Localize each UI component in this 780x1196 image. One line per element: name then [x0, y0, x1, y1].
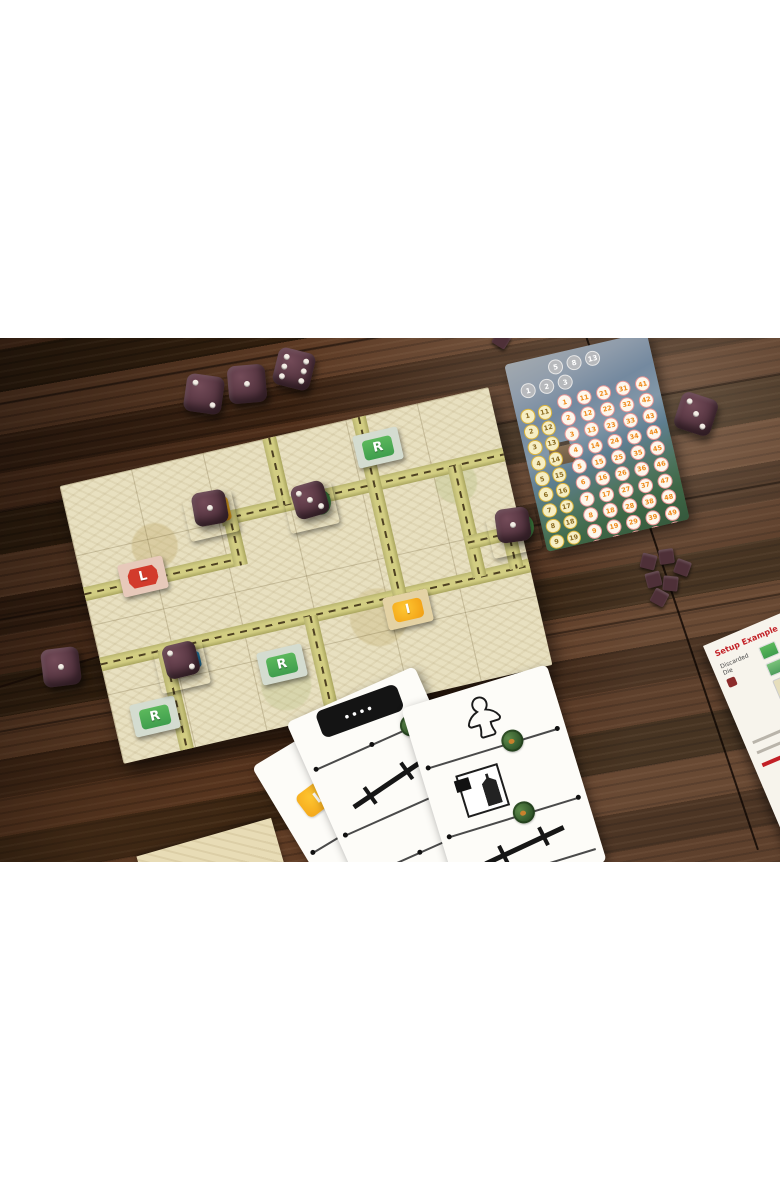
rulebook-page: Setup Example Discarded Die [703, 568, 780, 862]
score-circle: 44 [645, 423, 663, 441]
score-circle: 29 [624, 513, 642, 531]
wooden-cube [491, 338, 512, 350]
green-R-badge: R [138, 703, 172, 729]
die [190, 488, 229, 527]
score-circle: 34 [625, 428, 643, 446]
score-circle: 35 [629, 444, 647, 462]
wooden-cube [673, 558, 692, 577]
tile-thumbnail [765, 657, 780, 677]
score-circle: 10 [552, 549, 569, 552]
die-pip [188, 663, 195, 670]
die [672, 390, 720, 438]
score-circle: 21 [595, 384, 613, 402]
score-circle: 3 [526, 439, 543, 456]
scorepad-number-grids: 1234567891011121314151617181920 12345678… [518, 375, 686, 552]
bonus-circle: 2 [538, 377, 556, 395]
score-circle: 11 [575, 388, 593, 406]
score-circle: 8 [582, 506, 600, 524]
score-circle: 23 [602, 416, 620, 434]
score-circle: 4 [530, 455, 547, 472]
die [271, 346, 317, 392]
die-pip [300, 368, 307, 375]
bonus-circle: 8 [565, 354, 583, 372]
score-circle: 19 [565, 529, 582, 546]
scorepad-gray-track-upper: 5813 [547, 349, 602, 376]
wooden-cube [662, 575, 678, 591]
plank-seam [0, 338, 780, 410]
die-pip [192, 379, 199, 386]
die-pip [510, 522, 517, 529]
score-circle: 32 [618, 395, 636, 413]
wooden-cube [658, 548, 675, 565]
score-circle: 6 [574, 474, 592, 492]
die-pip [298, 377, 305, 384]
score-circle: 11 [536, 404, 553, 421]
score-circle: 45 [649, 439, 667, 457]
score-circle: 12 [579, 404, 597, 422]
die-pip [306, 496, 313, 503]
score-circle: 4 [567, 441, 585, 459]
score-circle: 14 [586, 437, 604, 455]
score-circle: 9 [585, 522, 603, 540]
rules-example-row: Discarded Die [719, 592, 780, 734]
score-circle: 18 [561, 513, 578, 530]
score-circle: 2 [559, 409, 577, 427]
green-R-badge: R [265, 651, 299, 677]
score-circle: 41 [634, 375, 652, 393]
score-circle: 33 [622, 412, 640, 430]
orange-I-badge: I [391, 596, 425, 622]
score-circle: 16 [554, 482, 571, 499]
score-circle: 48 [660, 488, 678, 506]
score-circle: 9 [548, 533, 565, 550]
score-circle: 20 [609, 534, 627, 552]
score-circle: 5 [571, 457, 589, 475]
score-circle: 15 [590, 453, 608, 471]
die-pip [295, 490, 302, 497]
product-photo: L R R R I 5813 123 [0, 338, 780, 862]
score-circle: 24 [606, 432, 624, 450]
bonus-circle: 1 [519, 382, 537, 400]
die [226, 363, 267, 404]
score-circle: 28 [621, 497, 639, 515]
green-R-badge: R [361, 434, 395, 460]
score-circle: 7 [578, 490, 596, 508]
score-circle: 27 [617, 481, 635, 499]
score-circle: 6 [537, 486, 554, 503]
score-circle: 47 [656, 472, 674, 490]
score-circle: 17 [598, 485, 616, 503]
die-pip [302, 358, 309, 365]
wooden-cube [639, 552, 657, 570]
score-circle: 3 [563, 425, 581, 443]
score-circle: 42 [637, 391, 655, 409]
score-circle: 30 [628, 529, 646, 547]
die-pip [686, 398, 694, 406]
die-pip [207, 505, 214, 512]
score-circle: 13 [583, 421, 601, 439]
score-circle: 7 [541, 502, 558, 519]
score-circle: 5 [533, 470, 550, 487]
bonus-circle: 3 [556, 373, 574, 391]
wooden-cube [644, 570, 662, 588]
score-circle: 16 [594, 469, 612, 487]
discarded-die-icon [726, 677, 738, 689]
black-square [454, 777, 472, 793]
die-pip [244, 381, 251, 388]
score-circle: 17 [558, 498, 575, 515]
bonus-circle: 5 [547, 358, 565, 376]
score-circle: 18 [601, 501, 619, 519]
score-circle: 31 [614, 379, 632, 397]
die-pip [699, 423, 707, 431]
score-circle: 49 [663, 504, 681, 522]
score-circle: 50 [667, 520, 685, 538]
die [183, 373, 226, 416]
score-circle: 15 [551, 466, 568, 483]
score-circle: 36 [633, 460, 651, 478]
score-circle: 1 [519, 407, 536, 424]
score-circle: 13 [543, 435, 560, 452]
die [40, 646, 82, 688]
product-page: L R R R I 5813 123 [0, 0, 780, 1196]
die-pip [209, 402, 216, 409]
score-circle: 8 [544, 517, 561, 534]
score-circle: 22 [598, 400, 616, 418]
score-circle: 25 [610, 448, 628, 466]
score-circle: 12 [540, 419, 557, 436]
score-circle: 26 [613, 465, 631, 483]
score-circle: 43 [641, 407, 659, 425]
die-pip [692, 410, 700, 418]
die-pip [317, 502, 324, 509]
score-circle: 46 [652, 456, 670, 474]
tile-thumbnail [758, 641, 780, 661]
score-circle: 20 [569, 545, 586, 552]
score-circle: 19 [605, 518, 623, 536]
tower-silhouette [479, 771, 503, 806]
die [494, 506, 532, 544]
score-circle: 14 [547, 451, 564, 468]
die-pip [281, 363, 288, 370]
red-L-badge: L [126, 563, 160, 589]
green-stamp-icon [510, 799, 537, 826]
score-circle: 1 [556, 393, 574, 411]
die-pip [58, 664, 65, 671]
die-pip [278, 373, 285, 380]
die-pip [167, 650, 174, 657]
tile-sheet-corner [136, 818, 287, 862]
score-circle: 39 [644, 509, 662, 527]
score-circle: 37 [636, 476, 654, 494]
die-pip [283, 353, 290, 360]
score-circle: 2 [523, 423, 540, 440]
score-circle: 10 [589, 538, 607, 552]
score-circle: 38 [640, 492, 658, 510]
building-photo-icon [455, 763, 510, 818]
bonus-circle: 13 [584, 349, 602, 367]
